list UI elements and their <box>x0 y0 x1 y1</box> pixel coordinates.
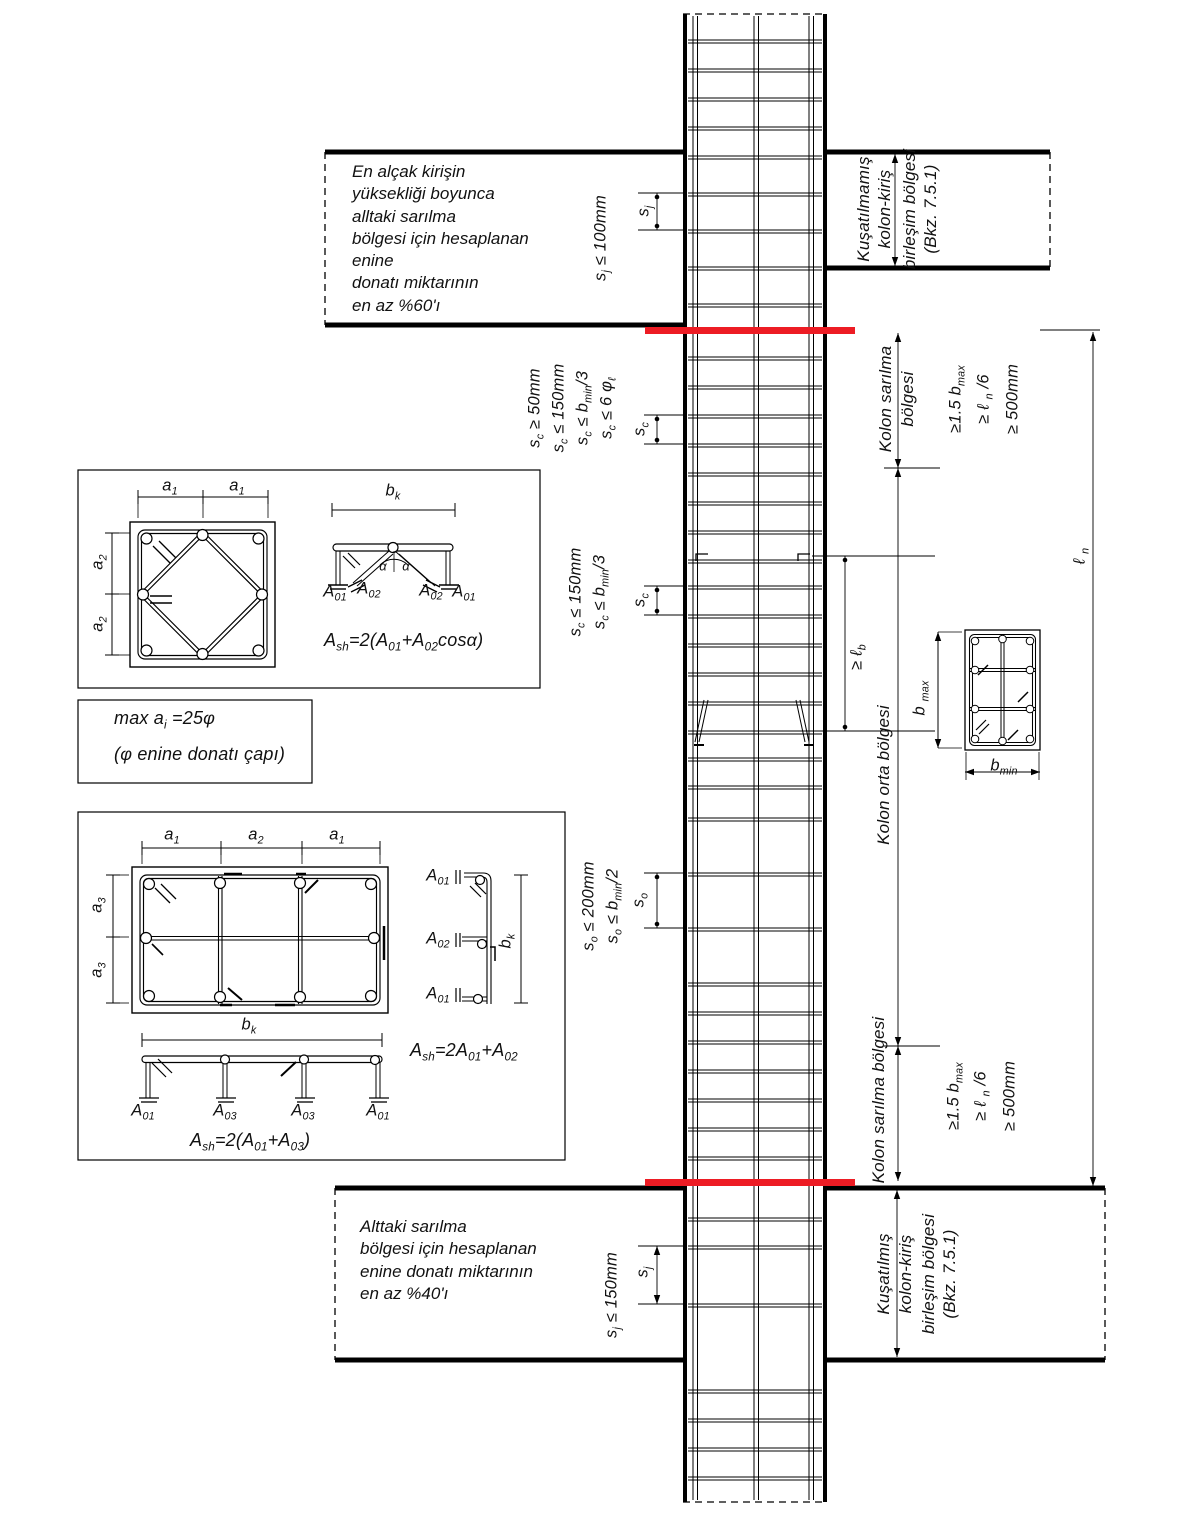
rect-bk-dim: bk <box>242 1015 257 1036</box>
sc-mid-rule-1: sc ≤ 150mm <box>566 548 587 637</box>
sq-a1-dim-right: a1 <box>229 476 245 497</box>
sj-top-dim: sj <box>634 205 655 216</box>
alpha-angle-right: α <box>402 559 410 574</box>
sc-mid-dim: sc <box>630 593 651 607</box>
sj-bottom-dim: sj <box>633 1266 654 1277</box>
rect-v-A01-top: A01 <box>426 866 450 887</box>
top-joint-label-line1: Kuşatılmamış <box>854 156 874 261</box>
so-rule-2: so ≤ bmin/2 <box>603 869 624 944</box>
sq-leg-A02-left: A02 <box>357 579 381 600</box>
rect-leg-A01-right: A01 <box>366 1101 390 1122</box>
bottom-joint-label-line4: (Bkz. 7.5.1) <box>940 1229 960 1318</box>
bmin-dim: bmin <box>990 756 1017 777</box>
rect-a3-dim-top: a3 <box>87 897 108 913</box>
sq-leg-A01-left: A01 <box>323 582 347 603</box>
top-confinement-limit-2: ≥ ℓ n /6 <box>974 374 995 423</box>
rect-a3-dim-bottom: a3 <box>87 962 108 978</box>
rect-v-bk-dim: bk <box>496 934 517 949</box>
bmax-dim: b max <box>910 680 931 715</box>
rect-Ash-formula-horizontal: Ash=2(A01+A03) <box>190 1130 310 1154</box>
so-rule-1: so ≤ 200mm <box>579 861 600 950</box>
rect-leg-A01-left: A01 <box>131 1101 155 1122</box>
top-left-note: En alçak kirişin yüksekliği boyunca allt… <box>352 161 529 317</box>
top-joint-label-line3: birleşim bölgesi <box>900 149 920 269</box>
bottom-confinement-limit-2: ≥ ℓ n /6 <box>971 1071 992 1120</box>
rect-a1-dim-left: a1 <box>164 825 180 846</box>
rect-Ash-formula-vertical: Ash=2A01+A02 <box>410 1040 518 1064</box>
top-confinement-label-line2: bölgesi <box>898 371 918 426</box>
bottom-confinement-limit-3: ≥ 500mm <box>1001 1061 1020 1131</box>
rect-v-A01-bottom: A01 <box>426 984 450 1005</box>
max-tie-spacing-note: max ai =25φ <box>114 708 215 732</box>
bottom-confinement-limit-1: ≥1.5 bmax <box>944 1062 965 1130</box>
sc-top-rule-4: sc ≤ 6 φℓ <box>597 377 618 439</box>
column-detailing-drawing: En alçak kirişin yüksekliği boyunca allt… <box>0 0 1177 1518</box>
sc-top-rule-3: sc ≤ bmin/3 <box>573 371 594 445</box>
alpha-angle-left: α <box>379 559 387 574</box>
bottom-confinement-label: Kolon sarılma bölgesi <box>869 1017 889 1184</box>
sq-leg-A02-right: A02 <box>419 581 443 602</box>
bottom-joint-label-line1: Kuşatılmış <box>874 1233 894 1314</box>
rect-a1-dim-right: a1 <box>329 825 345 846</box>
sq-a2-dim-top: a2 <box>88 554 109 570</box>
top-confinement-limit-3: ≥ 500mm <box>1004 364 1023 434</box>
tie-diameter-note: (φ enine donatı çapı) <box>114 744 285 765</box>
sc-top-rule-2: sc ≤ 150mm <box>549 364 570 453</box>
sc-top-rule-1: sc ≥ 50mm <box>525 368 546 447</box>
sq-a2-dim-bottom: a2 <box>88 616 109 632</box>
lap-length-dim: ≥ ℓb <box>847 644 868 670</box>
clear-height-dim: ℓ n <box>1070 548 1091 565</box>
rect-a2-dim: a2 <box>248 825 264 846</box>
bottom-joint-label-line3: birleşim bölgesi <box>919 1214 939 1334</box>
sj-top-rule: sj ≤ 100mm <box>591 195 612 281</box>
rect-leg-A03-right: A03 <box>291 1101 315 1122</box>
middle-zone-label: Kolon orta bölgesi <box>874 705 894 845</box>
bottom-joint-label-line2: kolon-kiriş <box>896 1235 916 1314</box>
sq-Ash-formula: Ash=2(A01+A02cosα) <box>324 630 483 654</box>
rect-leg-A03-left: A03 <box>213 1101 237 1122</box>
top-confinement-limit-1: ≥1.5 bmax <box>946 365 967 433</box>
top-joint-label-line4: (Bkz. 7.5.1) <box>921 164 941 253</box>
so-dim: so <box>629 893 650 908</box>
top-joint-label-line2: kolon-kiriş <box>875 170 895 249</box>
sq-a1-dim-left: a1 <box>162 476 178 497</box>
top-confinement-label-line1: Kolon sarılma <box>876 346 896 453</box>
sc-mid-rule-2: sc ≤ bmin/3 <box>590 555 611 629</box>
sc-top-dim: sc <box>630 422 651 436</box>
bottom-left-note: Alttaki sarılma bölgesi için hesaplanan … <box>360 1216 537 1305</box>
sq-bk-dim: bk <box>386 481 401 502</box>
sq-leg-A01-right: A01 <box>452 582 476 603</box>
sj-bottom-rule: sj ≤ 150mm <box>602 1252 623 1338</box>
rect-v-A02-mid: A02 <box>426 929 450 950</box>
